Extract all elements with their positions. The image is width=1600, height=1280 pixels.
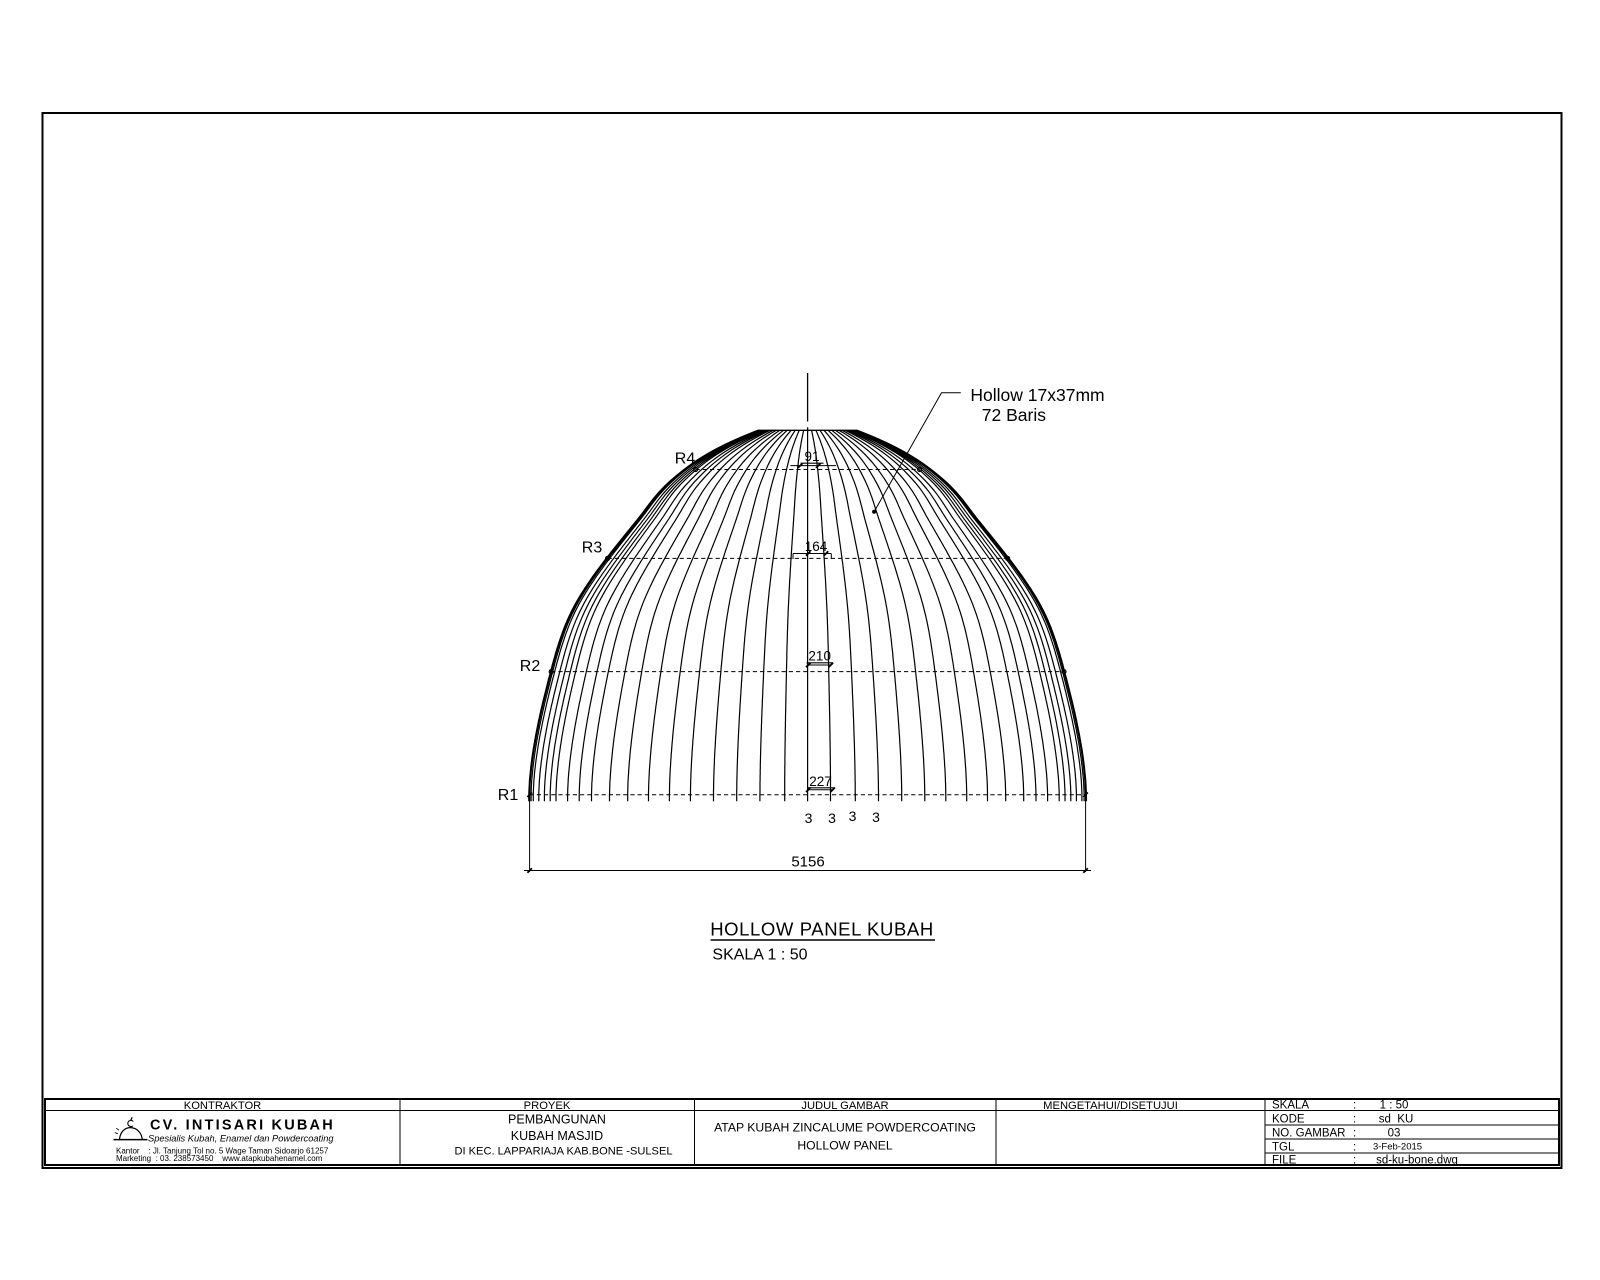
svg-text:PROYEK: PROYEK: [524, 1100, 571, 1112]
svg-text:R2: R2: [520, 658, 541, 675]
svg-text:JUDUL GAMBAR: JUDUL GAMBAR: [801, 1100, 888, 1112]
svg-text::: :: [1353, 1142, 1356, 1154]
svg-text:NO. GAMBAR: NO. GAMBAR: [1272, 1128, 1345, 1140]
svg-text:CV. INTISARI KUBAH: CV. INTISARI KUBAH: [150, 1118, 335, 1134]
svg-text:HOLLOW PANEL KUBAH: HOLLOW PANEL KUBAH: [710, 919, 934, 940]
svg-text:3: 3: [828, 810, 836, 826]
svg-text:R4: R4: [675, 451, 696, 468]
svg-text:DI KEC. LAPPARIAJA KAB.BONE -S: DI KEC. LAPPARIAJA KAB.BONE -SULSEL: [454, 1146, 672, 1158]
svg-text:03: 03: [1388, 1128, 1401, 1140]
svg-text:KUBAH MASJID: KUBAH MASJID: [511, 1129, 603, 1143]
svg-text:KONTRAKTOR: KONTRAKTOR: [184, 1100, 262, 1112]
svg-text:3: 3: [849, 808, 857, 824]
svg-text:3-Feb-2015: 3-Feb-2015: [1373, 1142, 1422, 1153]
svg-text:3: 3: [805, 810, 813, 826]
svg-text:HOLLOW PANEL: HOLLOW PANEL: [797, 1139, 892, 1153]
svg-text:SKALA 1 : 50: SKALA 1 : 50: [712, 947, 807, 964]
svg-text:sd-ku-bone.dwg: sd-ku-bone.dwg: [1376, 1155, 1458, 1167]
svg-text:164: 164: [805, 539, 828, 554]
svg-text::: :: [1353, 1100, 1356, 1112]
svg-text:PEMBANGUNAN: PEMBANGUNAN: [508, 1113, 606, 1127]
svg-text:TGL: TGL: [1272, 1142, 1295, 1154]
svg-text::: :: [1353, 1128, 1356, 1140]
svg-text:R1: R1: [498, 787, 519, 804]
svg-text::: :: [1353, 1155, 1356, 1167]
svg-text:Hollow 17x37mm: Hollow 17x37mm: [970, 385, 1104, 405]
svg-text:Spesialis Kubah, Enamel dan Po: Spesialis Kubah, Enamel dan Powdercoatin…: [148, 1134, 334, 1144]
svg-text:210: 210: [808, 649, 831, 664]
svg-text:Marketing : 03. 238573450: Marketing : 03. 238573450 www.atapkubahe…: [116, 1154, 323, 1163]
svg-text:SKALA: SKALA: [1272, 1100, 1309, 1112]
svg-text:FILE: FILE: [1272, 1155, 1297, 1167]
svg-text:KODE: KODE: [1272, 1114, 1305, 1126]
svg-text:MENGETAHUI/DISETUJUI: MENGETAHUI/DISETUJUI: [1043, 1100, 1178, 1112]
svg-text:227: 227: [809, 774, 832, 789]
svg-text:5156: 5156: [791, 854, 824, 871]
svg-text:3: 3: [872, 809, 880, 825]
svg-text:1 : 50: 1 : 50: [1380, 1100, 1409, 1112]
svg-text:72 Baris: 72 Baris: [982, 405, 1046, 425]
svg-text:sd KU: sd KU: [1379, 1114, 1414, 1126]
svg-text::: :: [1353, 1114, 1356, 1126]
svg-text:91: 91: [804, 449, 819, 464]
svg-text:ATAP KUBAH ZINCALUME POWDERCOA: ATAP KUBAH ZINCALUME POWDERCOATING: [714, 1121, 976, 1135]
svg-text:R3: R3: [582, 540, 603, 557]
